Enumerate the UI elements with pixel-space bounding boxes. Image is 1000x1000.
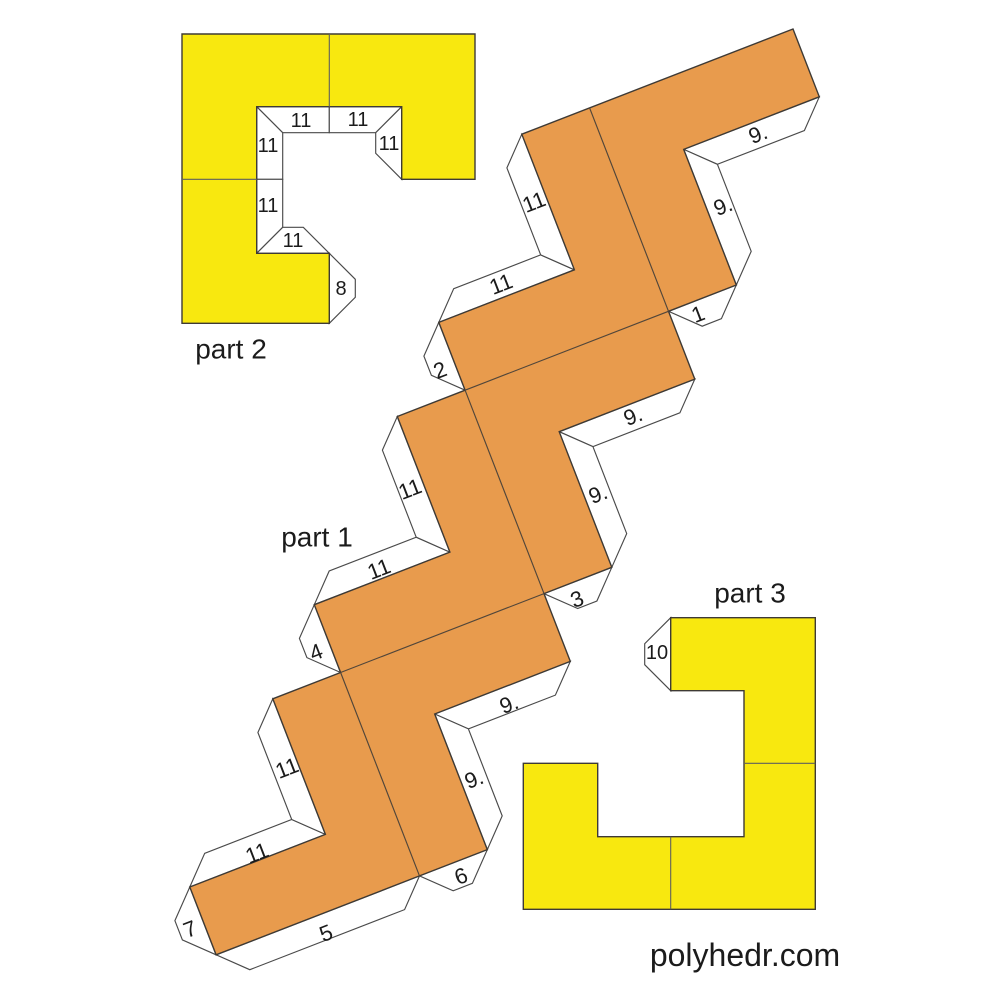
tab-label: 8 [335,278,346,300]
part2-title: part 2 [195,334,267,365]
tab-label: 11 [258,135,279,157]
part1-title: part 1 [281,522,353,553]
tab-label: 11 [283,230,304,252]
site-watermark: polyhedr.com [650,937,840,973]
part3-title: part 3 [714,578,786,609]
tab-label: 11 [258,195,279,217]
net-diagram: 9. 9. 1 9. 9. 3 9. 9. 6 5 7 11 11 4 11 1… [0,0,1000,1000]
tab-label: 11 [379,133,400,155]
papercraft-net-page: 9. 9. 1 9. 9. 3 9. 9. 6 5 7 11 11 4 11 1… [0,0,1000,1000]
part2-shape [182,34,475,323]
tab-label: 10 [646,642,668,664]
part3-net: 10 part 3 [523,578,815,910]
tab-label: 11 [348,109,369,131]
tab-label: 11 [291,110,312,132]
part2-net: 11 11 11 11 11 11 8 part 2 [182,34,475,365]
